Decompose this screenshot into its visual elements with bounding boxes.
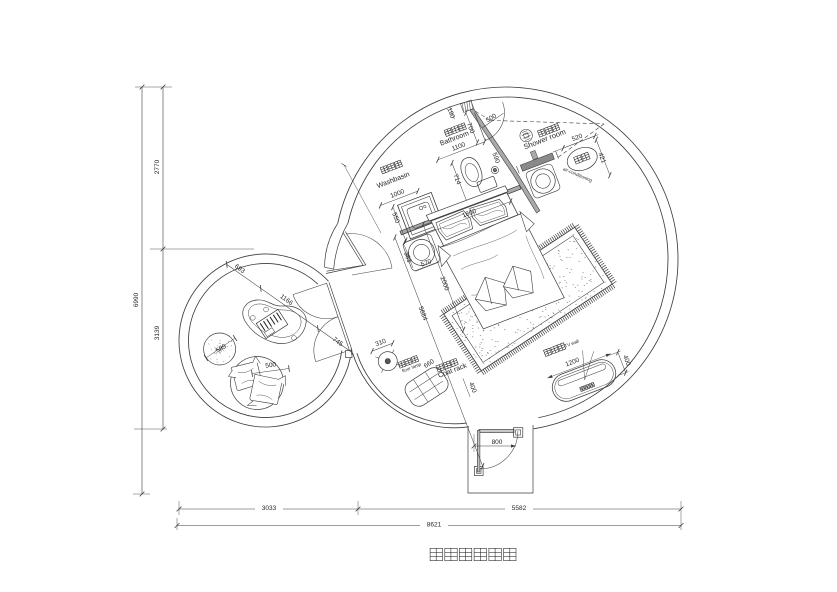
svg-text:6990: 6990 — [133, 292, 140, 307]
svg-text:800: 800 — [492, 439, 503, 446]
svg-text:3033: 3033 — [262, 505, 277, 512]
svg-text:3139: 3139 — [154, 325, 161, 340]
svg-text:2770: 2770 — [154, 159, 161, 174]
svg-text:5582: 5582 — [512, 505, 527, 512]
svg-text:8621: 8621 — [427, 522, 442, 529]
